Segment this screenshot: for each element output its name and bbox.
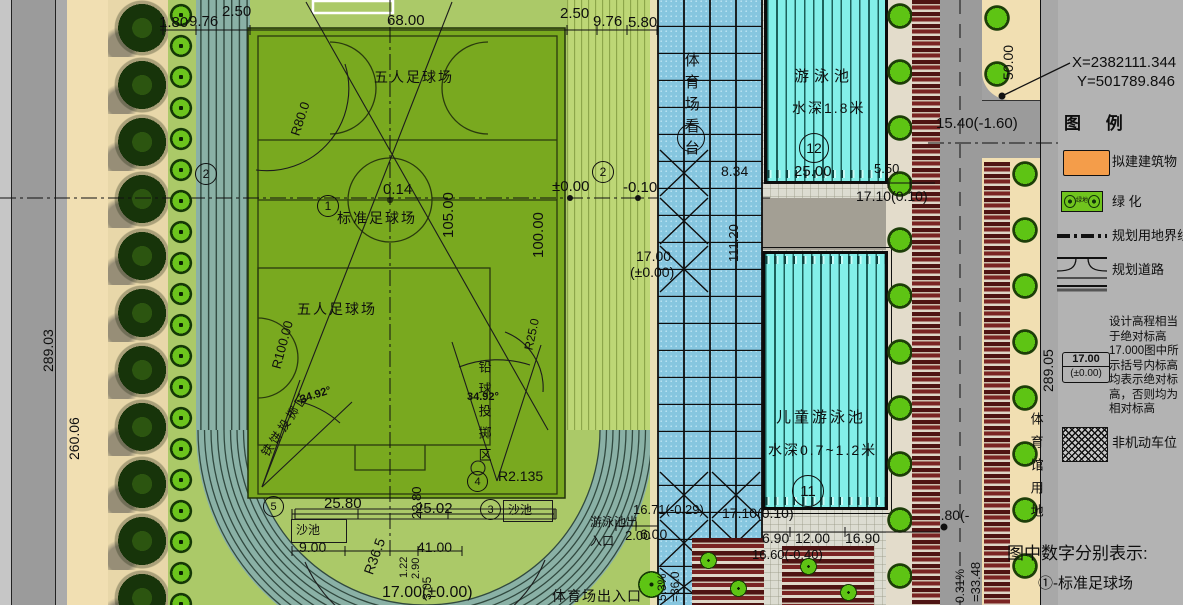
dim-580: 5.80 — [628, 15, 657, 31]
dim-1200: 12.00 — [795, 531, 830, 546]
dim-250-east: 2.50 — [560, 6, 589, 22]
callout-11-kids-pool: 11 — [792, 475, 824, 507]
green-space-icon — [1064, 195, 1076, 208]
main-pool-depth: 水深1.8米 — [792, 101, 865, 116]
legend-label-boundary: 规划用地界线 — [1112, 229, 1183, 243]
legend-swatch-boundary — [1057, 234, 1107, 238]
slope-031pct: 0.31% — [954, 569, 967, 603]
dim-eq-360: =36.0 — [669, 572, 682, 602]
kids-pool-name: 儿童游泳池 — [776, 410, 866, 426]
elev-1660: 16.60(-0.40) — [752, 548, 823, 562]
shotput-zone-label: 铅球投掷区 — [477, 360, 491, 470]
dim-2280: 22.80 — [410, 486, 424, 519]
dim-28905: 289.05 — [1041, 349, 1056, 392]
elev-plusminus-000: ±0.00 — [552, 179, 589, 195]
callout-3-sand: 3 — [480, 499, 501, 520]
elev-minus-010: -0.10 — [623, 180, 657, 196]
five-a-side-label-bottom: 五人足球场 — [297, 302, 377, 317]
elevation-symbol-value: 17.00 — [1063, 353, 1109, 367]
dim-6800: 68.00 — [387, 13, 425, 29]
dim-250-west: 2.50 — [222, 4, 251, 20]
pool-entrance-label: 游泳池出入口 — [590, 513, 648, 551]
sand-pit-label-east: 沙池 — [508, 504, 532, 517]
slope-53pct: 5.3% — [656, 574, 669, 601]
green-space-icon — [1088, 195, 1100, 208]
legend-elevation-symbol: 17.00 (±0.00) — [1062, 352, 1110, 383]
kids-pool-depth: 水深0.7~1.2米 — [768, 443, 877, 458]
legend-swatch-building — [1063, 150, 1110, 176]
dim-690: 6.90 — [762, 531, 789, 546]
legend-swatch-green: 绿地 — [1061, 191, 1103, 212]
sand-pit-label-west: 沙池 — [296, 524, 320, 537]
dim-11120: 111.20 — [727, 224, 741, 262]
elev-1710-bottom: 17.10(0.10) — [722, 506, 794, 521]
dim-2580: 25.80 — [324, 496, 362, 512]
callout-2-track-west: 2 — [195, 163, 217, 185]
elev-014: 0.14 — [383, 182, 412, 198]
legend-label-road: 规划道路 — [1112, 263, 1164, 277]
dim-976-west: 9.76 — [189, 14, 218, 30]
dim-1690: 16.90 — [845, 531, 880, 546]
stand-elev-pm000: (±0.00) — [630, 265, 674, 280]
dim-5000: 50.00 — [1001, 45, 1016, 80]
elevation-symbol-abs: (±0.00) — [1063, 367, 1109, 380]
standard-field-label: 标准足球场 — [337, 211, 417, 226]
legend-swatch-nonmotor — [1062, 427, 1108, 462]
callout-12-main-pool: 12 — [799, 133, 829, 163]
green-symbol-column — [168, 0, 194, 605]
legend-title: 图 例 — [1064, 115, 1133, 133]
dim-900: 9.00 — [299, 540, 326, 555]
coordinate-y-label: Y=501789.846 — [1077, 74, 1175, 90]
callout-5-discus: 5 — [263, 496, 284, 517]
dim-976-east: 9.76 — [593, 14, 622, 30]
dim-eq-3348: =33.48 — [969, 562, 983, 602]
elev-1700-pm000: 17.00(±0.00) — [382, 585, 473, 602]
figure-numbers-note-title: 图中数字分别表示: — [1007, 545, 1148, 563]
main-pool-name: 游泳池 — [794, 69, 854, 85]
dim-180: 1.80 — [159, 15, 188, 31]
figure-number-item-1: ①-标准足球场 — [1038, 576, 1133, 592]
dim-26006: 260.06 — [67, 417, 82, 460]
legend-elevation-note: 设计高程相当 于绝对标高 17.000图中所 示括号内标高 均表示绝对标 高，否… — [1109, 315, 1182, 417]
dim-105: 105.00 — [441, 192, 457, 238]
dim-834: 8.34 — [721, 164, 748, 179]
legend-label-building: 拟建建筑物 — [1112, 155, 1177, 169]
dim-122: 1.22 — [399, 557, 411, 578]
legend-swatch-road-icon — [1056, 252, 1108, 292]
tree-icon — [700, 552, 717, 569]
stadium-entrance-label: 体育场出入口 — [552, 589, 642, 604]
callout-1-standard-field: 1 — [317, 195, 339, 217]
radius-r2135: R2.135 — [498, 469, 543, 484]
coordinate-x-label: X=2382111.344 — [1072, 55, 1176, 71]
grandstand-label-circle — [677, 124, 705, 152]
legend-label-green: 绿 化 — [1112, 195, 1142, 209]
gym-parcel-label: 体育馆用地 — [1029, 412, 1043, 527]
dim-100: 100.00 — [531, 212, 547, 258]
stand-elev-1700: 17.00 — [636, 249, 671, 264]
dim-4100: 41.00 — [417, 540, 452, 555]
site-plan-canvas: 2.50 1.80 9.76 68.00 2.50 9.76 5.80 五人足球… — [0, 0, 1183, 605]
elev-1540: 15.40(-1.60) — [936, 116, 1018, 132]
five-a-side-label-top: 五人足球场 — [374, 70, 454, 85]
dim-28903: 289.03 — [41, 329, 56, 372]
dim-550: 5.50 — [874, 162, 899, 176]
green-mini-label: 绿地 — [1076, 198, 1088, 204]
callout-2-track-east: 2 — [592, 161, 614, 183]
callout-4-shotput: 4 — [467, 471, 488, 492]
tree-icon — [840, 584, 857, 601]
legend-label-nonmotor: 非机动车位 — [1112, 436, 1177, 450]
elev-1710-top: 17.10(0.10) — [856, 189, 928, 204]
dim-2500: 25.00 — [794, 164, 832, 180]
tree-icon — [730, 580, 747, 597]
